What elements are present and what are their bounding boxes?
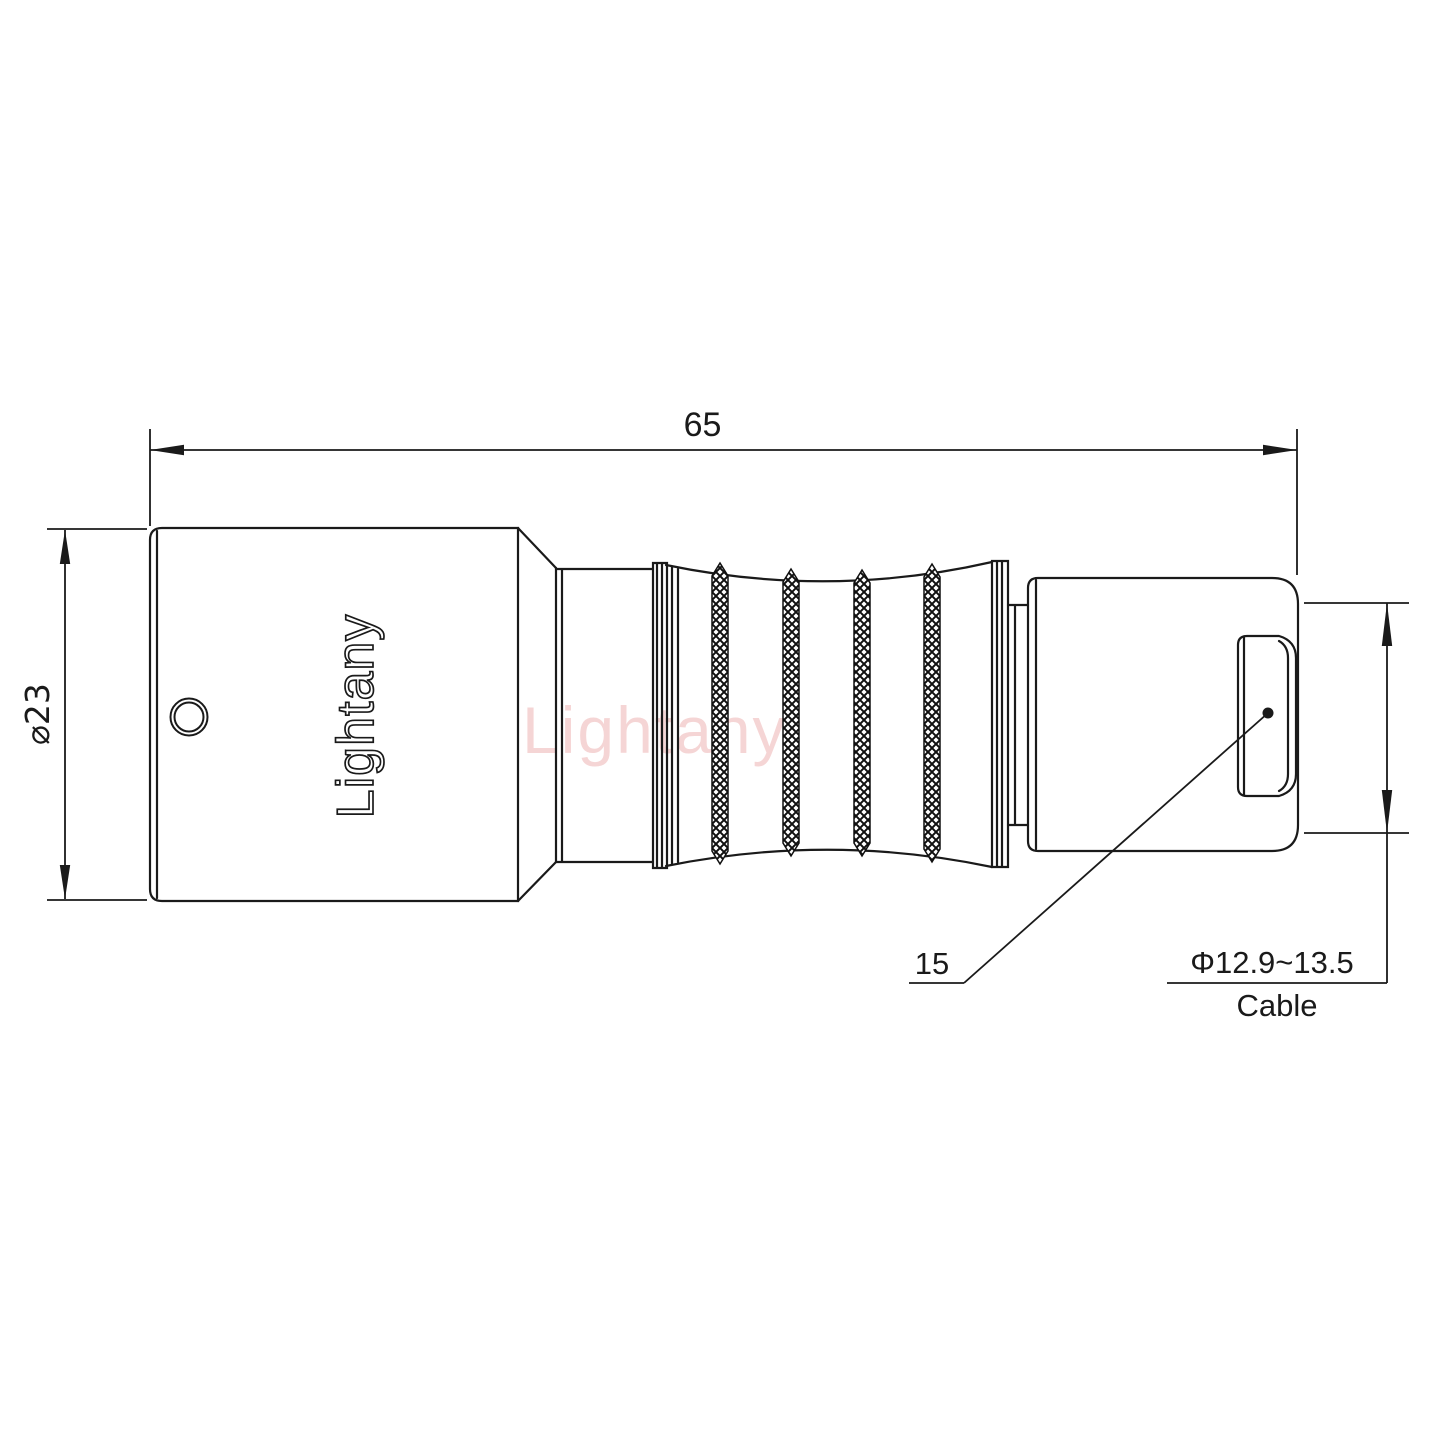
- linework-layer: [0, 0, 1440, 1440]
- arrowhead-top: [60, 530, 70, 564]
- dim-body-diameter-label: ⌀23: [18, 634, 58, 794]
- leader-line: [964, 713, 1268, 983]
- dim-overall-length-label: 65: [655, 407, 750, 444]
- body-hole-outer: [171, 699, 208, 736]
- boot-right-inner-edge: [1279, 641, 1288, 791]
- knurl-band-4: [924, 564, 940, 862]
- taper-edges: [518, 528, 556, 901]
- cable-caption-label: Cable: [1156, 989, 1398, 1023]
- dimension-body-diameter: [47, 529, 147, 900]
- body-hole-inner: [175, 703, 204, 732]
- callout-15-label: 15: [900, 947, 964, 981]
- technical-drawing-canvas: Lightany: [0, 0, 1440, 1440]
- dimension-overall-length: [150, 429, 1297, 575]
- knurl-bands: [712, 563, 940, 864]
- cylinder-edges: [556, 569, 653, 862]
- collar-left: [653, 563, 667, 868]
- cable-diameter-label: Φ12.9~13.5: [1156, 946, 1388, 980]
- knurl-band-2: [783, 569, 799, 856]
- embossed-logo: Lightany: [323, 566, 389, 866]
- arrowhead-bottom: [1382, 790, 1392, 833]
- taper-step-edges: [556, 568, 562, 862]
- nut-outline: [1028, 578, 1298, 851]
- collar-right: [992, 561, 1008, 867]
- leader-dot: [1263, 708, 1274, 719]
- callout-15: [909, 708, 1274, 984]
- arrowhead-right: [1263, 445, 1297, 455]
- knurl-left-edges: [672, 567, 678, 864]
- knurl-band-3: [854, 570, 870, 856]
- arrowhead-top: [1382, 603, 1392, 646]
- arrowhead-left: [150, 445, 184, 455]
- neck-edges: [1008, 605, 1028, 825]
- knurl-band-1: [712, 563, 728, 864]
- arrowhead-bottom: [60, 865, 70, 899]
